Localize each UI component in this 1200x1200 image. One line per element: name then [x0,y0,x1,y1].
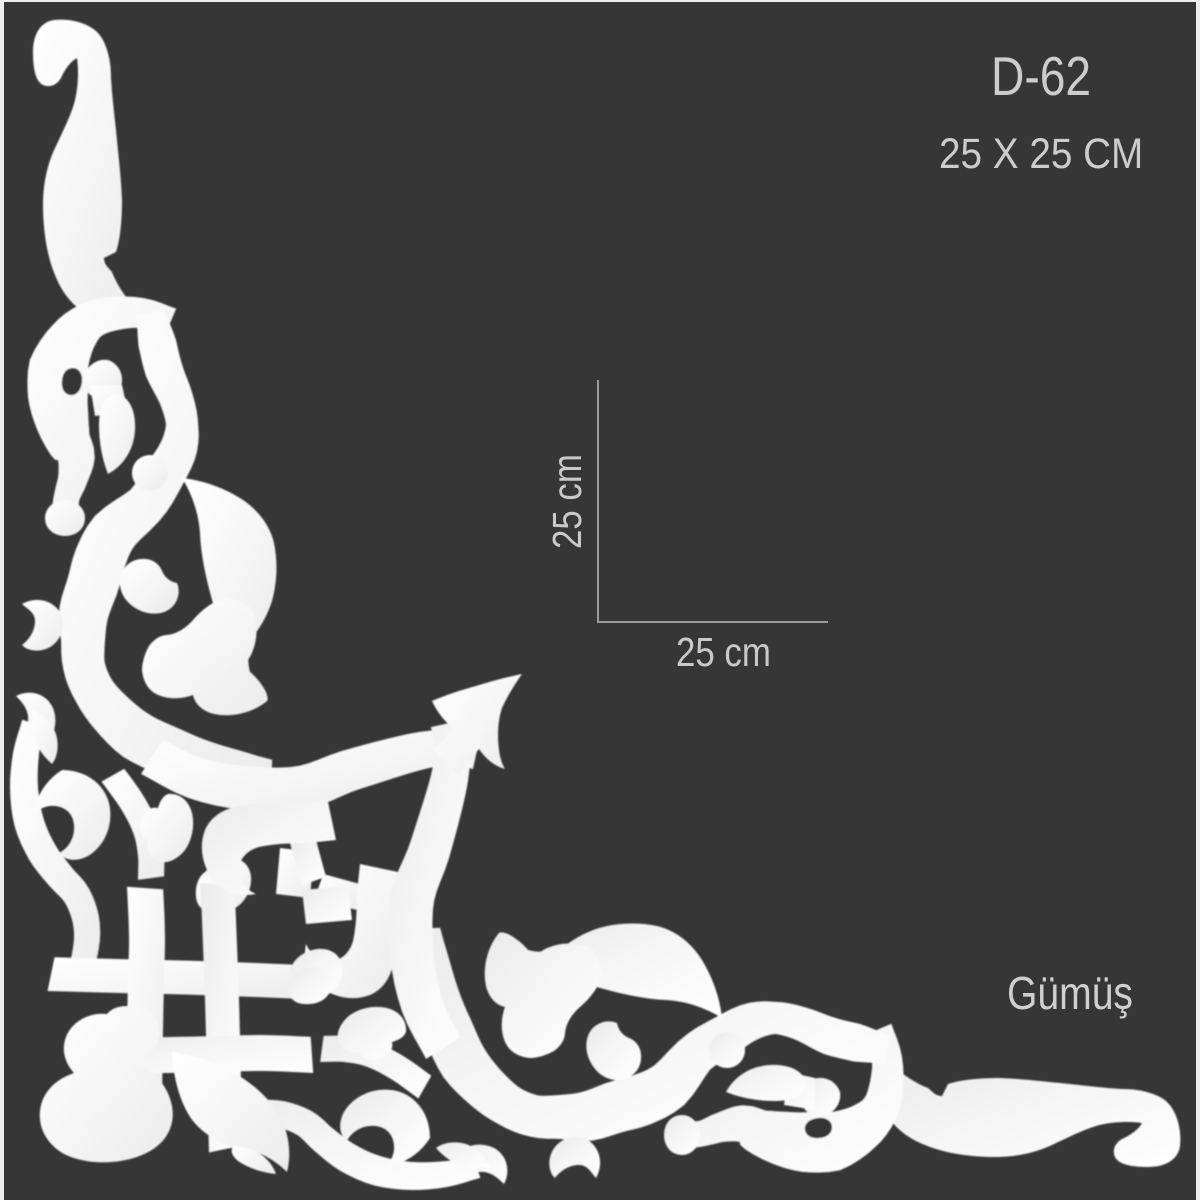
svg-text:25 cm: 25 cm [676,630,771,675]
svg-text:25 cm: 25 cm [545,454,590,549]
svg-text:25 X 25 CM: 25 X 25 CM [939,129,1143,177]
svg-text:Gümüş: Gümüş [1007,968,1133,1020]
svg-text:D-62: D-62 [991,45,1091,107]
